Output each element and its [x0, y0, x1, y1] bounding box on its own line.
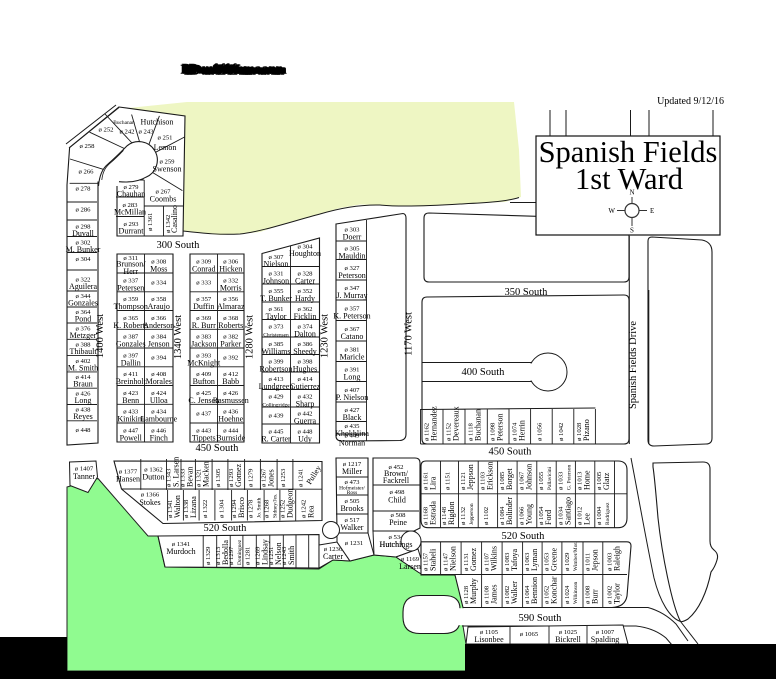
svg-text:Bevan: Bevan: [186, 467, 195, 487]
svg-text:ø 448: ø 448: [75, 427, 91, 434]
svg-text:Sidney/Jes.: Sidney/Jes.: [273, 494, 279, 518]
svg-text:Burnside: Burnside: [216, 434, 245, 443]
svg-text:ø 1241: ø 1241: [297, 469, 304, 487]
svg-text:Reyes: Reyes: [73, 412, 93, 421]
svg-text:Tippets: Tippets: [192, 434, 216, 443]
svg-text:ø 1042: ø 1042: [558, 423, 565, 441]
svg-text:Greene: Greene: [550, 547, 559, 571]
svg-text:Petersen: Petersen: [117, 283, 144, 292]
svg-text:Braun: Braun: [73, 380, 93, 389]
svg-text:Raleigh: Raleigh: [612, 546, 621, 571]
svg-text:ø 429: ø 429: [268, 393, 284, 400]
svg-text:Sharp: Sharp: [296, 399, 315, 408]
svg-text:Spalding: Spalding: [591, 635, 619, 644]
svg-text:ø 258: ø 258: [79, 143, 95, 150]
svg-text:Lemon: Lemon: [154, 143, 177, 152]
svg-text:Lira: Lira: [428, 476, 437, 490]
svg-text:ø 1304: ø 1304: [218, 499, 225, 518]
svg-text:Wilkins: Wilkins: [489, 546, 498, 571]
svg-text:Murphy: Murphy: [469, 578, 478, 604]
svg-text:Metzger: Metzger: [70, 331, 97, 340]
svg-text:Gomez: Gomez: [234, 463, 243, 487]
svg-text:Dalton: Dalton: [294, 329, 316, 338]
svg-text:Duffin: Duffin: [193, 302, 214, 311]
svg-text:Hardy: Hardy: [295, 294, 315, 303]
svg-text:Finch: Finch: [150, 434, 168, 443]
svg-text:ø 1305: ø 1305: [215, 468, 222, 487]
svg-text:ø 439: ø 439: [268, 413, 284, 420]
svg-text:400 South: 400 South: [462, 367, 506, 378]
svg-text:Jackson: Jackson: [191, 340, 216, 349]
svg-text:R. Burr: R. Burr: [192, 321, 216, 330]
svg-text:Jepperson: Jepperson: [469, 503, 475, 525]
svg-text:J. Murray: J. Murray: [336, 291, 367, 300]
svg-text:Pond: Pond: [75, 315, 91, 324]
svg-text:Jepson: Jepson: [590, 549, 599, 571]
svg-text:Borget: Borget: [505, 468, 514, 490]
svg-text:Parker: Parker: [220, 340, 241, 349]
svg-text:Dudgeon: Dudgeon: [285, 489, 294, 518]
svg-text:ø 243: ø 243: [138, 129, 154, 136]
svg-text:Moss: Moss: [150, 265, 167, 274]
svg-text:1280 West: 1280 West: [245, 315, 256, 359]
svg-text:Christensen: Christensen: [263, 332, 289, 338]
svg-text:Nielson: Nielson: [264, 260, 289, 269]
svg-text:Durrant: Durrant: [119, 227, 145, 236]
svg-text:Ross: Ross: [347, 490, 358, 496]
svg-text:Young: Young: [524, 504, 533, 525]
svg-text:Peterson: Peterson: [338, 271, 366, 280]
svg-text:W: W: [608, 207, 615, 215]
svg-text:Tafoya: Tafoya: [510, 548, 519, 571]
svg-text:ø 1361: ø 1361: [147, 213, 154, 231]
svg-text:N: N: [629, 189, 634, 197]
svg-text:Lyman: Lyman: [530, 549, 539, 571]
svg-text:Pizano: Pizano: [582, 419, 591, 441]
svg-text:450 South: 450 South: [196, 443, 240, 454]
svg-text:ø 333: ø 333: [196, 279, 212, 286]
svg-text:Thompson: Thompson: [114, 302, 148, 311]
svg-text:Ficklin: Ficklin: [294, 312, 317, 321]
svg-text:Erickson: Erickson: [485, 462, 494, 490]
svg-text:ø 1297: ø 1297: [228, 546, 235, 565]
svg-text:Maricle: Maricle: [340, 352, 365, 361]
svg-text:Pallavicini: Pallavicini: [547, 466, 553, 490]
svg-text:Casalino: Casalino: [170, 205, 179, 233]
svg-text:Johnson: Johnson: [524, 464, 533, 490]
svg-text:ø 1231: ø 1231: [345, 540, 363, 547]
svg-text:Catano: Catano: [341, 332, 364, 341]
svg-text:1400 West: 1400 West: [95, 314, 106, 358]
svg-text:Santiago: Santiago: [563, 497, 572, 525]
svg-text:Herr: Herr: [123, 267, 138, 276]
svg-text:Walker: Walker: [510, 581, 519, 604]
svg-text:M. Smith: M. Smith: [68, 364, 98, 373]
svg-text:1170 West: 1170 West: [404, 312, 415, 356]
svg-text:Roberts: Roberts: [218, 321, 243, 330]
svg-text:Powell: Powell: [120, 434, 143, 443]
svg-text:Babb: Babb: [222, 377, 239, 386]
svg-text:Jo. Smith: Jo. Smith: [256, 497, 262, 518]
svg-text:ø 1055: ø 1055: [538, 471, 545, 490]
svg-text:Lambourne: Lambourne: [140, 415, 177, 424]
svg-text:G. Peterson: G. Peterson: [566, 465, 572, 490]
svg-text:Dutton: Dutton: [142, 473, 164, 482]
svg-text:Brisco: Brisco: [237, 497, 246, 518]
svg-text:Udy: Udy: [298, 435, 312, 444]
svg-text:Collingridge: Collingridge: [262, 402, 290, 408]
svg-text:Houghton: Houghton: [289, 249, 321, 258]
svg-text:Carter: Carter: [323, 552, 343, 561]
svg-text:T. Bunker: T. Bunker: [260, 294, 292, 303]
svg-text:R. Carter: R. Carter: [261, 435, 291, 444]
svg-text:Mauldin: Mauldin: [338, 251, 365, 260]
svg-text:Peterson: Peterson: [496, 413, 505, 441]
svg-text:590 South: 590 South: [519, 613, 563, 624]
svg-text:ø 252: ø 252: [98, 127, 113, 134]
svg-text:Stokes: Stokes: [139, 498, 160, 507]
svg-text:Sheedy: Sheedy: [293, 347, 317, 356]
svg-text:ø 334: ø 334: [151, 279, 167, 286]
svg-text:Home: Home: [583, 470, 592, 490]
svg-text:K. Peterson: K. Peterson: [333, 311, 370, 320]
svg-text:Aguilera: Aguilera: [69, 282, 97, 291]
svg-text:ø 242: ø 242: [119, 129, 134, 136]
svg-text:Lizana: Lizana: [189, 496, 198, 518]
svg-text:ø 1102: ø 1102: [483, 507, 490, 525]
svg-text:Fackrell: Fackrell: [383, 476, 410, 485]
svg-text:Rodriguez: Rodriguez: [605, 502, 611, 525]
svg-text:Devereaux: Devereaux: [452, 406, 461, 441]
svg-text:Jenson: Jenson: [148, 340, 170, 349]
svg-text:Tanner: Tanner: [73, 472, 95, 481]
svg-text:Dominguez: Dominguez: [237, 539, 243, 565]
svg-text:ø 1065: ø 1065: [520, 631, 539, 638]
svg-text:Conrad: Conrad: [192, 265, 216, 274]
svg-text:Araujo: Araujo: [148, 302, 170, 311]
svg-text:450 South: 450 South: [489, 447, 533, 458]
svg-text:Buchanan: Buchanan: [474, 409, 483, 441]
svg-text:520 South: 520 South: [204, 523, 248, 534]
svg-text:ø 266: ø 266: [78, 169, 94, 176]
svg-text:ø 1253: ø 1253: [280, 468, 287, 487]
svg-text:Peine: Peine: [389, 518, 407, 527]
svg-text:Taylor: Taylor: [266, 312, 287, 321]
svg-text:ø 278: ø 278: [75, 186, 91, 193]
svg-text:Hoehne: Hoehne: [218, 415, 243, 424]
svg-text:Wimber/Mor.: Wimber/Mor.: [573, 542, 579, 571]
svg-text:Walton: Walton: [173, 495, 182, 518]
svg-text:Herrin: Herrin: [517, 420, 526, 441]
svg-text:ø 1024: ø 1024: [564, 585, 571, 604]
svg-text:Walker: Walker: [341, 523, 364, 532]
svg-text:Hutchison: Hutchison: [141, 118, 174, 127]
svg-text:Bennion: Bennion: [530, 577, 539, 604]
svg-text:Bickrell: Bickrell: [555, 635, 582, 644]
svg-text:Hughes: Hughes: [293, 364, 317, 373]
svg-text:ø 1132: ø 1132: [460, 507, 467, 525]
svg-text:Bufton: Bufton: [193, 377, 215, 386]
svg-text:ø 1322: ø 1322: [202, 500, 209, 518]
svg-text:Doerr: Doerr: [343, 233, 362, 242]
svg-text:Swenson: Swenson: [153, 165, 182, 174]
svg-text:Gonzales: Gonzales: [68, 299, 98, 308]
svg-text:Jeppson: Jeppson: [466, 464, 475, 490]
svg-text:P. Nielson: P. Nielson: [336, 393, 368, 402]
svg-text:ø 373: ø 373: [268, 323, 284, 330]
svg-text:Gonzales: Gonzales: [116, 340, 146, 349]
svg-text:ø 392: ø 392: [223, 354, 238, 361]
svg-text:ø 437: ø 437: [196, 411, 212, 418]
svg-text:Johnson: Johnson: [263, 276, 289, 285]
svg-text:McKnight: McKnight: [187, 358, 221, 367]
svg-text:Ulloa: Ulloa: [150, 396, 168, 405]
svg-text:Taylor: Taylor: [612, 583, 621, 604]
svg-text:Benn: Benn: [122, 396, 139, 405]
svg-text:Thibault: Thibault: [69, 347, 97, 356]
svg-text:Smith: Smith: [287, 546, 296, 565]
svg-text:ø 394: ø 394: [151, 354, 167, 361]
svg-text:Ford: Ford: [544, 510, 553, 525]
svg-text:Black: Black: [343, 413, 362, 422]
svg-text:Nielson: Nielson: [448, 546, 457, 571]
svg-text:Updated 9/12/16: Updated 9/12/16: [657, 96, 724, 107]
svg-text:Macken: Macken: [201, 461, 210, 487]
svg-text:Breinholt: Breinholt: [116, 377, 147, 386]
svg-text:1230 West: 1230 West: [320, 314, 331, 358]
svg-text:ø 1281: ø 1281: [245, 547, 252, 565]
svg-text:Hernandez: Hernandez: [429, 406, 438, 441]
svg-text:James: James: [489, 584, 498, 604]
svg-text:Chauhan: Chauhan: [117, 190, 145, 199]
svg-text:Lundgreen: Lundgreen: [259, 382, 294, 391]
svg-text:Child: Child: [388, 496, 406, 505]
svg-text:Morris: Morris: [220, 283, 242, 292]
svg-text:ø 286: ø 286: [75, 207, 91, 214]
svg-text:Rea: Rea: [306, 505, 315, 518]
svg-text:Hansen: Hansen: [116, 475, 140, 484]
svg-text:Long: Long: [344, 373, 361, 382]
svg-text:Hicken: Hicken: [219, 265, 242, 274]
svg-text:Murdoch: Murdoch: [166, 547, 195, 556]
svg-text:ø 1029: ø 1029: [564, 552, 571, 571]
svg-text:Long: Long: [75, 396, 92, 405]
svg-text:Coombs: Coombs: [150, 195, 177, 204]
svg-text:300 South: 300 South: [157, 240, 201, 251]
svg-text:Buchanan: Buchanan: [113, 120, 135, 126]
svg-text:ø 1151: ø 1151: [445, 472, 452, 490]
svg-text:Rigdon: Rigdon: [447, 501, 456, 525]
svg-text:M. Bunker: M. Bunker: [66, 245, 101, 254]
svg-text:Jones: Jones: [266, 469, 275, 487]
svg-text:McMillan: McMillan: [114, 208, 146, 217]
svg-text:ø 251: ø 251: [157, 135, 172, 142]
svg-text:Hutchings: Hutchings: [380, 540, 413, 549]
svg-text:Carter: Carter: [295, 276, 315, 285]
svg-text:ø 1279: ø 1279: [248, 468, 255, 487]
svg-text:Gomez: Gomez: [469, 547, 478, 571]
svg-text:ø 1329: ø 1329: [205, 546, 212, 565]
svg-text:E: E: [650, 207, 654, 215]
svg-text:ø 1033: ø 1033: [557, 471, 564, 490]
svg-text:Anderson: Anderson: [143, 321, 174, 330]
svg-text:Miller: Miller: [342, 467, 362, 476]
svg-text:ø 1268: ø 1268: [264, 499, 271, 518]
svg-text:Morales: Morales: [146, 377, 172, 386]
svg-text:1340 West: 1340 West: [173, 315, 184, 359]
svg-text:Staheli: Staheli: [428, 548, 437, 571]
svg-text:520 South: 520 South: [502, 531, 546, 542]
svg-text:Konchar: Konchar: [550, 576, 559, 604]
svg-text:S: S: [630, 227, 634, 235]
svg-text:ø 1004: ø 1004: [596, 506, 603, 525]
svg-text:Almaraz: Almaraz: [217, 302, 245, 311]
svg-text:Wilkinson: Wilkinson: [573, 581, 579, 604]
svg-text:ø 1278: ø 1278: [247, 499, 254, 518]
svg-text:Lisonbee: Lisonbee: [474, 635, 504, 644]
svg-text:Gutierrez: Gutierrez: [290, 382, 321, 391]
svg-text:Rasmussen: Rasmussen: [213, 396, 249, 405]
svg-text:Brooks: Brooks: [340, 504, 363, 513]
svg-text:ø 304: ø 304: [75, 256, 91, 263]
svg-text:Norman: Norman: [339, 439, 365, 448]
svg-text:Guerra: Guerra: [294, 417, 317, 426]
svg-text:Williams: Williams: [261, 347, 290, 356]
svg-text:Duvall: Duvall: [72, 229, 95, 238]
svg-text:ø 1056: ø 1056: [536, 422, 543, 441]
svg-text:Estrada: Estrada: [428, 501, 437, 525]
svg-text:Glatz: Glatz: [602, 472, 611, 490]
svg-text:Lee: Lee: [583, 513, 592, 525]
svg-text:Bolinder: Bolinder: [505, 497, 514, 525]
svg-text:Robertson: Robertson: [260, 364, 293, 373]
svg-text:Larsen: Larsen: [399, 562, 421, 571]
svg-text:Burr: Burr: [590, 589, 599, 604]
svg-text:Dallin: Dallin: [121, 358, 141, 367]
